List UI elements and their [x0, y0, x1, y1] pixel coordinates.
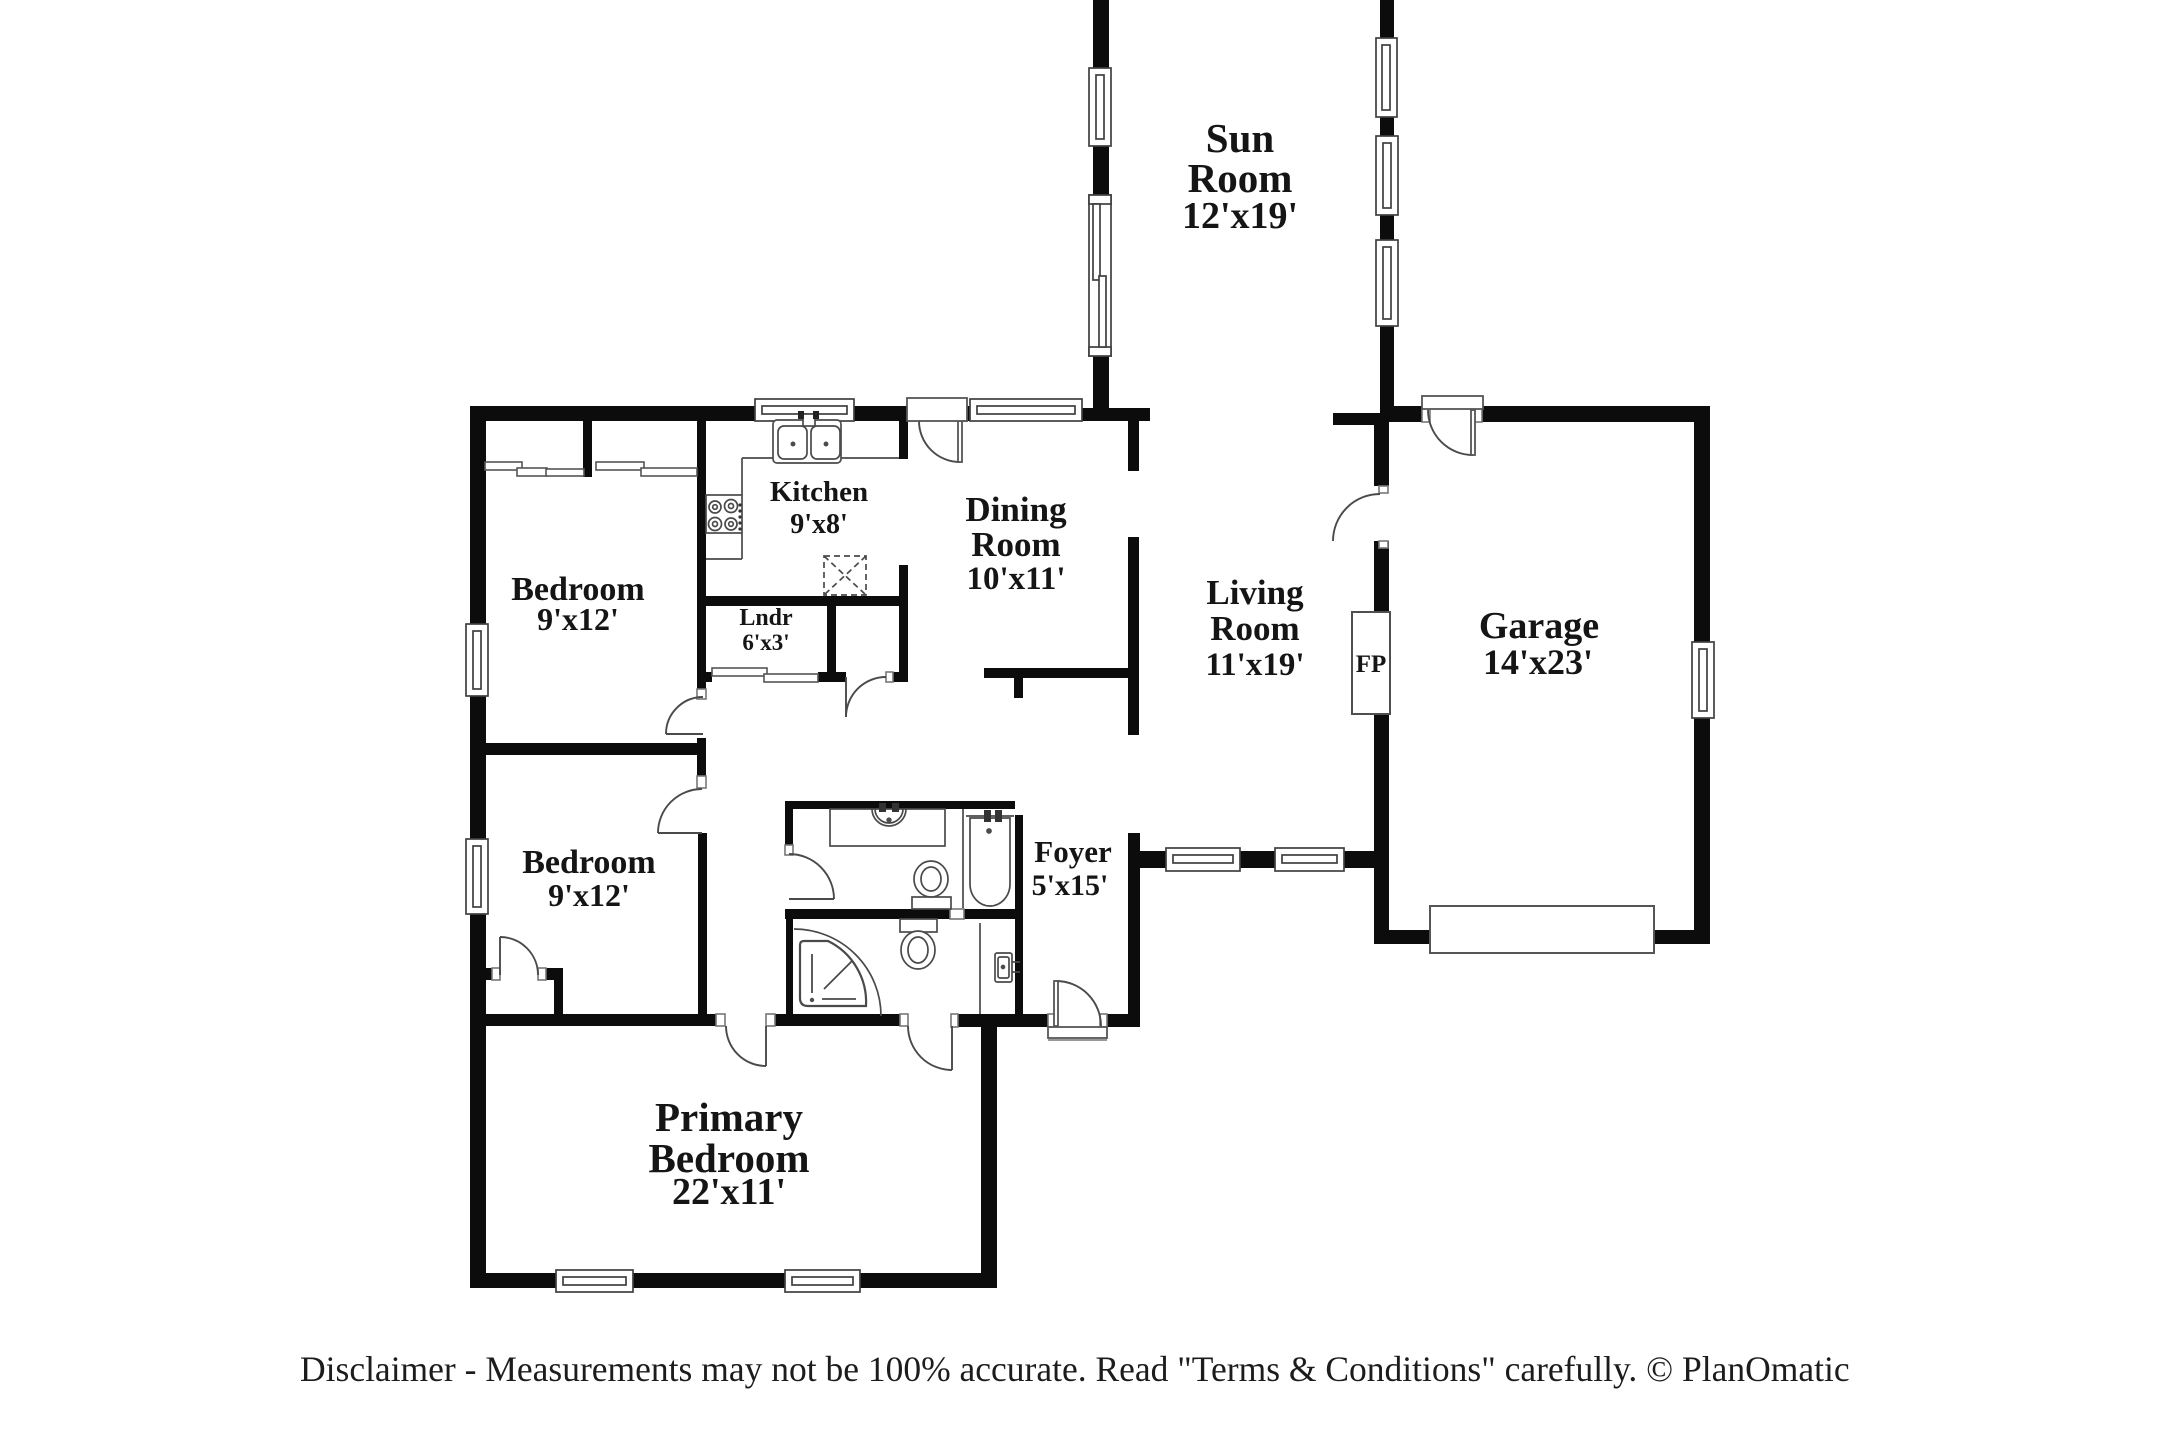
svg-text:Foyer: Foyer — [1034, 834, 1112, 869]
svg-text:Room: Room — [1210, 609, 1299, 648]
svg-text:Primary: Primary — [655, 1094, 803, 1140]
svg-text:14'x23': 14'x23' — [1483, 642, 1593, 682]
svg-text:5'x15': 5'x15' — [1032, 869, 1109, 902]
svg-text:6'x3': 6'x3' — [742, 630, 789, 655]
svg-text:Kitchen: Kitchen — [770, 476, 868, 508]
svg-text:9'x12': 9'x12' — [548, 877, 630, 913]
svg-text:Bedroom: Bedroom — [522, 844, 655, 881]
svg-text:Disclaimer - Measurements may: Disclaimer - Measurements may not be 100… — [300, 1349, 1850, 1389]
svg-text:Living: Living — [1206, 573, 1304, 612]
svg-text:22'x11': 22'x11' — [672, 1171, 786, 1213]
svg-text:Room: Room — [971, 525, 1060, 564]
svg-text:10'x11': 10'x11' — [966, 561, 1065, 597]
svg-text:Garage: Garage — [1479, 605, 1599, 647]
svg-text:9'x8': 9'x8' — [790, 509, 848, 540]
svg-text:12'x19': 12'x19' — [1182, 195, 1298, 237]
svg-text:9'x12': 9'x12' — [537, 601, 619, 637]
svg-text:Dining: Dining — [965, 490, 1067, 529]
svg-text:Lndr: Lndr — [739, 605, 793, 631]
svg-text:11'x19': 11'x19' — [1205, 647, 1304, 683]
svg-text:FP: FP — [1356, 651, 1387, 678]
